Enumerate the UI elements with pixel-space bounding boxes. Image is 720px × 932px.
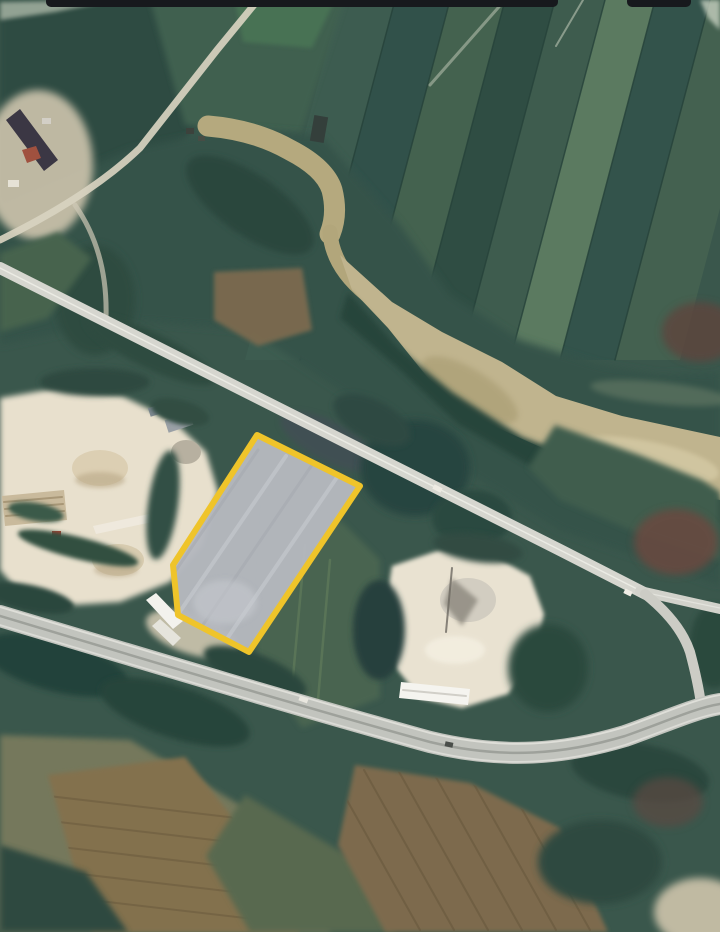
trees-se-red (633, 777, 703, 827)
shed-pond-edge (198, 136, 205, 141)
trees-se (538, 820, 662, 904)
trees-red-fork (634, 509, 718, 575)
trees-quarry-top (40, 368, 150, 396)
satellite-imagery (0, 0, 720, 932)
shed-white (8, 180, 19, 187)
satellite-map-view[interactable] (0, 0, 720, 932)
trees-plant-west (353, 580, 405, 680)
shed-gray (42, 118, 51, 124)
sand-pile-shadow (75, 472, 125, 488)
plant-gravel-white (425, 636, 485, 664)
ui-bar-fragment (46, 0, 558, 7)
ui-bar-fragment (627, 0, 691, 7)
parcel-pale-patch (193, 580, 257, 624)
shed-pond-edge (186, 128, 194, 134)
trees-plant-east (508, 624, 588, 712)
